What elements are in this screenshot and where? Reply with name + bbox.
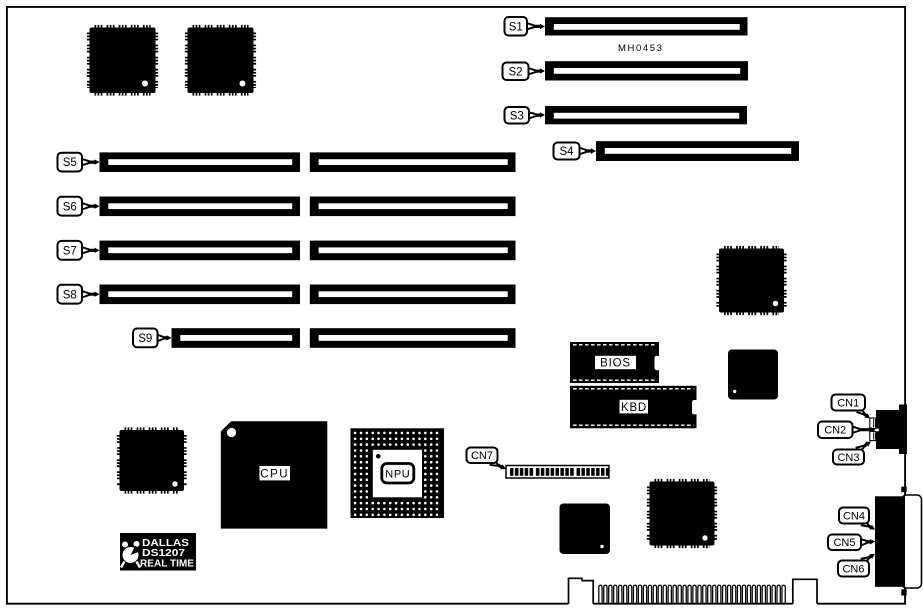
svg-text:NPU: NPU [385,469,410,481]
svg-text:REAL TIME: REAL TIME [140,559,194,570]
svg-text:S7: S7 [63,245,77,257]
svg-text:S3: S3 [510,110,524,122]
svg-text:S8: S8 [63,289,77,301]
svg-text:CN1: CN1 [837,397,859,409]
svg-text:BIOS: BIOS [600,358,631,370]
svg-text:CPU: CPU [260,469,289,481]
svg-text:CN7: CN7 [471,450,493,462]
svg-text:CN4: CN4 [843,510,865,522]
svg-text:S1: S1 [509,21,523,33]
svg-text:CN2: CN2 [824,425,846,437]
svg-text:CN5: CN5 [833,537,855,549]
svg-text:S5: S5 [63,157,77,169]
svg-text:S2: S2 [508,66,522,78]
svg-text:CN6: CN6 [842,563,864,575]
svg-text:CN3: CN3 [837,452,859,464]
svg-text:DS1207: DS1207 [142,548,186,559]
svg-text:S9: S9 [138,333,152,345]
svg-text:KBD: KBD [621,402,647,414]
svg-text:MH0453: MH0453 [618,43,664,54]
svg-text:S6: S6 [63,201,77,213]
svg-text:S4: S4 [559,146,574,158]
